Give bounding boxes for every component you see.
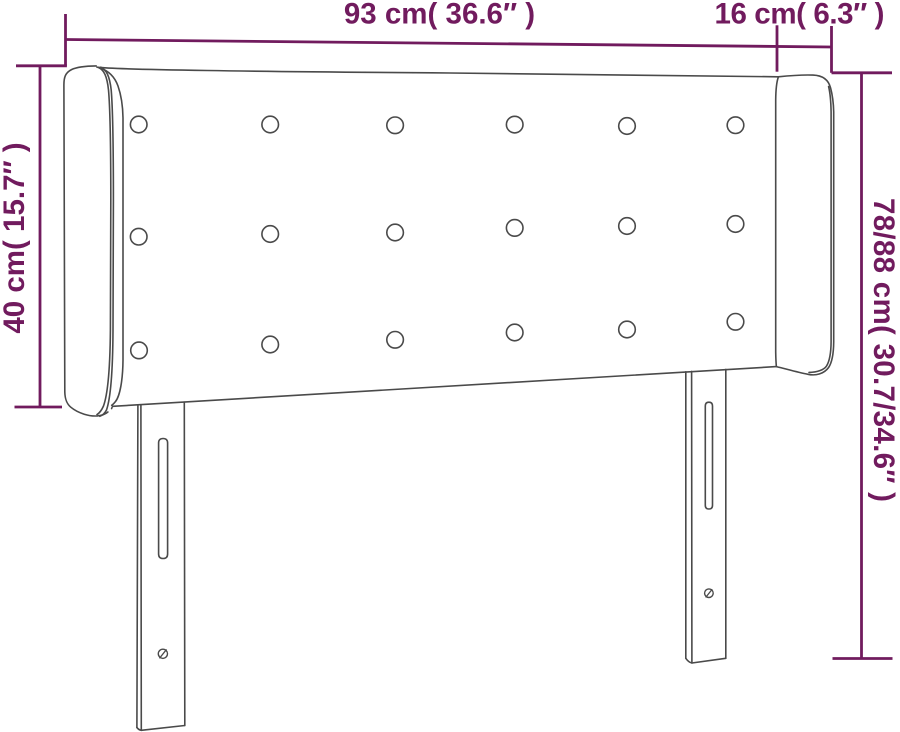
svg-text:16 cm( 6.3″ ): 16 cm( 6.3″ ) (715, 0, 885, 30)
svg-text:78/88 cm( 30.7/34.6″ ): 78/88 cm( 30.7/34.6″ ) (867, 198, 900, 502)
svg-text:93 cm( 36.6″ ): 93 cm( 36.6″ ) (344, 0, 535, 31)
svg-text:40 cm( 15.7″ ): 40 cm( 15.7″ ) (0, 142, 31, 333)
